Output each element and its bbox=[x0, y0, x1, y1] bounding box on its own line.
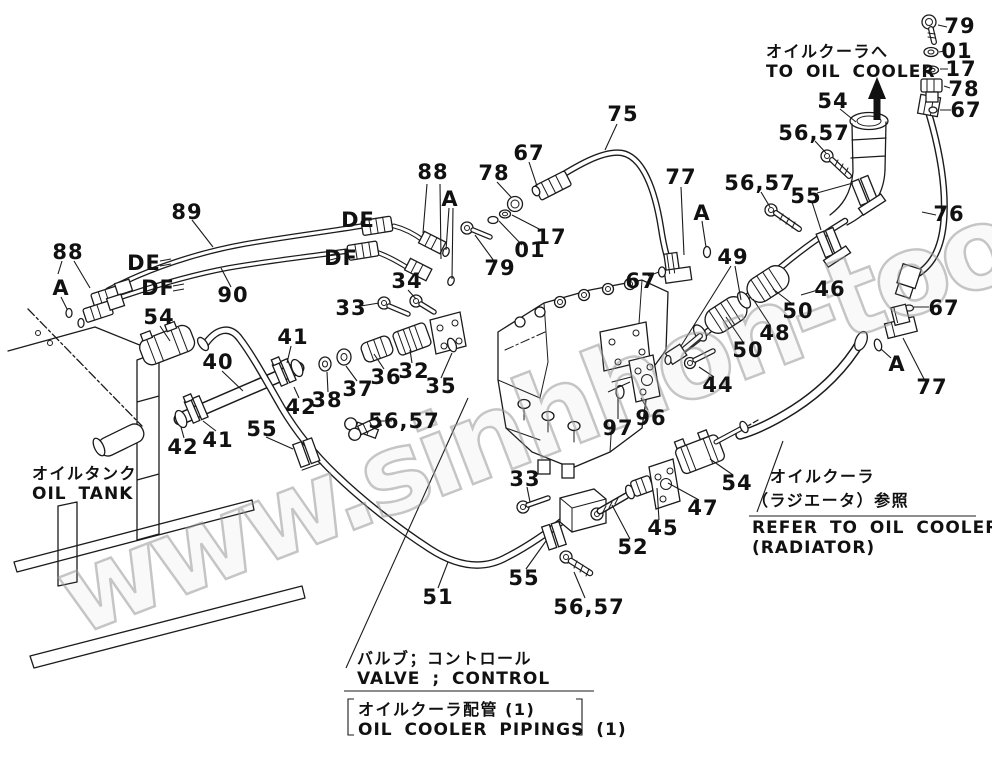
part-callout: 01 bbox=[514, 238, 545, 262]
part-callout: 48 bbox=[759, 321, 790, 345]
pipings-title-note: オイルクーラ配管 (1) OIL COOLER PIPINGS (1) bbox=[358, 696, 627, 740]
part-callout: 55 bbox=[508, 566, 539, 590]
oil-tank-en: OIL TANK bbox=[32, 484, 137, 504]
part-callout: 42 bbox=[167, 435, 198, 459]
to-oil-cooler-en: TO OIL COOLER bbox=[766, 62, 935, 82]
part-callout: 45 bbox=[647, 516, 678, 540]
part-callout: 54 bbox=[721, 471, 752, 495]
part-callout: 89 bbox=[171, 200, 202, 224]
part-callout: 44 bbox=[702, 373, 733, 397]
part-callout: A bbox=[441, 187, 458, 211]
part-callout: 51 bbox=[422, 585, 453, 609]
part-callout: 50 bbox=[782, 299, 813, 323]
part-callout: 79 bbox=[944, 14, 975, 38]
oil-tank-jp: オイルタンク bbox=[32, 460, 137, 484]
part-callout: 79 bbox=[484, 256, 515, 280]
part-callout: 78 bbox=[478, 161, 509, 185]
part-callout: 52 bbox=[617, 535, 648, 559]
part-callout: 46 bbox=[814, 277, 845, 301]
refer-en-line1: REFER TO OIL COOLER bbox=[752, 518, 992, 538]
part-callout: 33 bbox=[335, 296, 366, 320]
part-callout: 35 bbox=[425, 374, 456, 398]
part-callout: 88 bbox=[52, 240, 83, 264]
part-callout: 41 bbox=[202, 428, 233, 452]
part-callout: A bbox=[52, 276, 69, 300]
refer-jp-line1: オイルクーラ bbox=[770, 463, 992, 487]
to-oil-cooler-note: オイルクーラへ TO OIL COOLER bbox=[766, 38, 935, 82]
oil-tank-note: オイルタンク OIL TANK bbox=[32, 460, 137, 504]
part-callout: DF bbox=[141, 276, 175, 300]
part-callout: A bbox=[693, 201, 710, 225]
part-callout: 55 bbox=[246, 417, 277, 441]
part-callout: 40 bbox=[202, 350, 233, 374]
part-callout: 34 bbox=[391, 269, 422, 293]
part-callout: DE bbox=[127, 251, 161, 275]
pipings-title-en: OIL COOLER PIPINGS (1) bbox=[358, 720, 627, 740]
part-callout: 67 bbox=[950, 98, 981, 122]
part-callout: 54 bbox=[143, 305, 174, 329]
refer-en-line2: (RADIATOR) bbox=[752, 538, 992, 558]
valve-control-en: VALVE ; CONTROL bbox=[357, 669, 550, 689]
pipings-title-jp: オイルクーラ配管 (1) bbox=[358, 696, 627, 720]
part-callout: DE bbox=[341, 208, 375, 232]
part-callout: 96 bbox=[635, 406, 666, 430]
part-callout: 56,57 bbox=[724, 171, 795, 195]
refer-jp-line2: （ラジエータ）参照 bbox=[752, 487, 992, 511]
part-callout: 97 bbox=[602, 416, 633, 440]
part-callout: 33 bbox=[509, 467, 540, 491]
part-callout: 56,57 bbox=[553, 595, 624, 619]
part-callout: 47 bbox=[687, 496, 718, 520]
valve-control-jp: バルブ；コントロール bbox=[357, 645, 550, 669]
part-callout: 36 bbox=[370, 365, 401, 389]
part-callout: 55 bbox=[790, 184, 821, 208]
part-callout: 38 bbox=[311, 388, 342, 412]
part-callout: 41 bbox=[277, 325, 308, 349]
part-callout: A bbox=[888, 352, 905, 376]
part-callout: 67 bbox=[928, 296, 959, 320]
part-callout: DF bbox=[324, 246, 358, 270]
valve-control-note: バルブ；コントロール VALVE ; CONTROL bbox=[357, 645, 550, 689]
part-callout: 56,57 bbox=[778, 121, 849, 145]
refer-oil-cooler-note: オイルクーラ （ラジエータ）参照 REFER TO OIL COOLER (RA… bbox=[752, 463, 992, 558]
part-callout: 67 bbox=[625, 269, 656, 293]
part-callout: 90 bbox=[217, 283, 248, 307]
part-callout: 75 bbox=[607, 102, 638, 126]
to-oil-cooler-jp: オイルクーラへ bbox=[766, 38, 935, 62]
part-callout: 56,57 bbox=[368, 409, 439, 433]
part-callout: 67 bbox=[513, 141, 544, 165]
part-callout: 50 bbox=[732, 338, 763, 362]
part-callout: 88 bbox=[417, 160, 448, 184]
part-callout: 49 bbox=[717, 245, 748, 269]
part-callout: 77 bbox=[916, 375, 947, 399]
part-callout: 76 bbox=[933, 202, 964, 226]
part-callout: 77 bbox=[665, 165, 696, 189]
part-callout: 37 bbox=[342, 377, 373, 401]
part-callout: 54 bbox=[817, 89, 848, 113]
diagram-page: www.sinhhon-too.kz bbox=[0, 0, 992, 769]
